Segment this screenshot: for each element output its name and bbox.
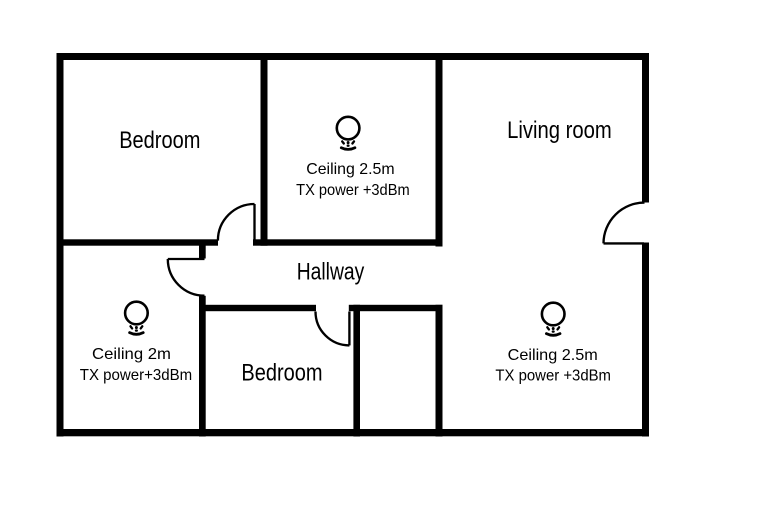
svg-text:Living room: Living room [507, 116, 612, 143]
svg-text:TX power+3dBm: TX power+3dBm [80, 367, 192, 384]
svg-text:TX power +3dBm: TX power +3dBm [296, 182, 410, 200]
svg-text:TX power +3dBm: TX power +3dBm [495, 367, 611, 384]
svg-text:Ceiling 2.5m: Ceiling 2.5m [306, 161, 394, 178]
svg-text:Hallway: Hallway [297, 258, 365, 286]
svg-text:Bedroom: Bedroom [119, 126, 200, 153]
svg-text:Ceiling 2m: Ceiling 2m [92, 346, 171, 363]
svg-text:Ceiling 2.5m: Ceiling 2.5m [508, 347, 598, 364]
svg-text:Bedroom: Bedroom [241, 359, 322, 386]
